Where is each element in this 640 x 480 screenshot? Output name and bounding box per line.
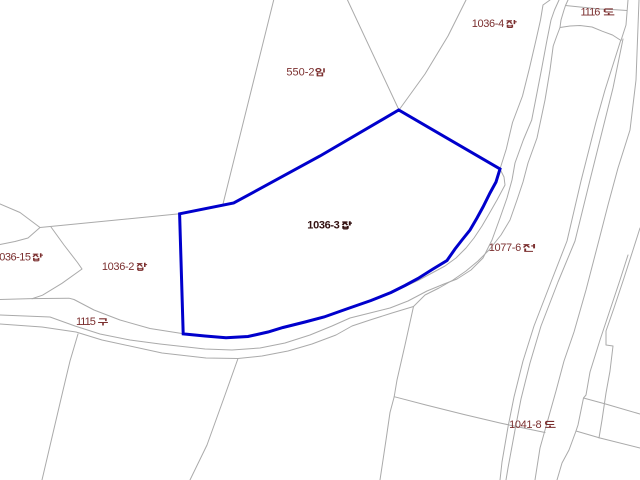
svg-text:1036-3: 1036-3 [307, 219, 339, 231]
svg-text:1036-2: 1036-2 [102, 261, 134, 273]
svg-text:1041-8: 1041-8 [509, 419, 541, 431]
svg-text:1077-6: 1077-6 [489, 242, 521, 254]
svg-text:1036-4: 1036-4 [472, 18, 504, 30]
svg-text:1116: 1116 [581, 7, 601, 19]
svg-text:550-2: 550-2 [286, 66, 314, 78]
svg-text:1036-15: 1036-15 [0, 251, 31, 263]
svg-text:1115: 1115 [76, 316, 96, 328]
